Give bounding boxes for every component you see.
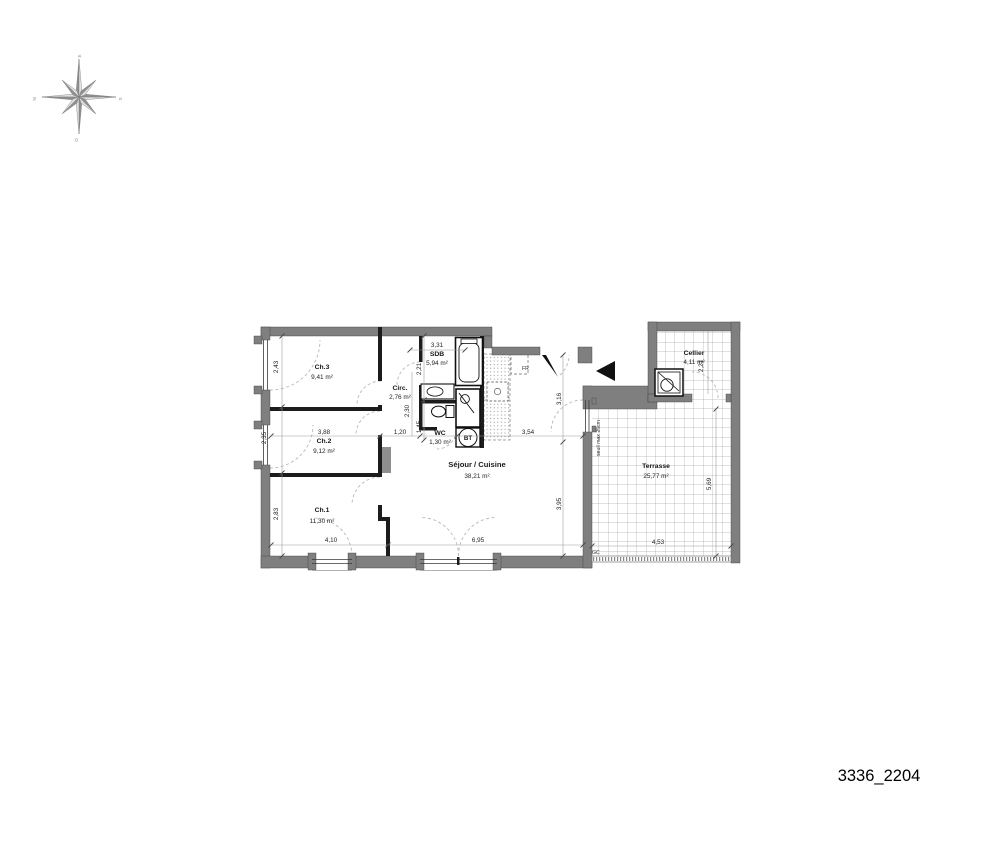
dim-circ-width: 1,20 [394,429,407,436]
dim-ch1-height: 2,83 [273,507,280,520]
dim-sdb-height: 2,21 [416,362,423,375]
duct-shaft [382,447,391,473]
dim-ch1-width: 4,10 [325,537,338,544]
dim-terrasse-width: 4,53 [652,539,665,546]
compass-letter-o: O [74,138,79,142]
dim-cellier-height: 2,21 [698,359,705,372]
cellar-fixtures [655,369,683,396]
fridge-label: FR [522,366,529,372]
terrace-railing [592,556,731,562]
compass-letter-n: N [32,97,37,100]
toilet-icon [446,406,454,418]
room-name-ch1: Ch.1 [315,507,330,514]
room-area-ch2: 9,12 m² [313,448,335,455]
dim-sejour-height: 3,95 [556,497,563,510]
room-area-circ: 2,76 m² [389,394,411,401]
plan-reference-number: 3336_2204 [838,767,921,785]
dim-ch2-height: 2,35 [261,431,268,444]
hob-icon [487,382,508,401]
entry-door [542,355,558,377]
compass-letter-e: E [77,54,82,57]
room-area-terrasse: 25,77 m² [643,473,668,480]
threshold-label: seuil max 25cm [596,420,602,456]
compass-letter-s: S [118,97,123,100]
dim-ch2-width: 3,88 [318,429,331,436]
dim-sejour-width: 6,95 [472,537,485,544]
room-name-ch3: Ch.3 [315,364,330,371]
room-name-wc: WC [434,430,445,437]
dim-wc-inner: 1,45 [416,420,423,433]
dim-ch3-height: 2,43 [273,360,280,373]
room-name-terrasse: Terrasse [642,463,670,470]
room-name-circ: Circ. [392,385,407,392]
room-area-sdb: 5,94 m² [426,360,448,367]
floor-plan-page: N E S O [0,0,1000,857]
dim-entry-height: 3,16 [556,392,563,405]
room-area-sejour: 38,21 m² [464,473,489,480]
compass-rose: N E S O [32,54,123,141]
room-name-sdb: SDB [430,351,444,358]
floor-plan-canvas: N E S O [0,0,1000,857]
dim-sejour-mid: 3,54 [522,429,535,436]
entrance-arrow-icon [596,361,615,381]
room-area-ch3: 9,41 m² [311,374,333,381]
dim-wc-height: 2,30 [404,404,411,417]
entry-door-leaf [542,355,558,377]
dim-terrasse-height: 5,69 [706,477,713,490]
room-area-ch1: 11,30 m² [310,518,335,525]
room-name-sejour: Séjour / Cuisine [448,460,505,469]
room-name-cellier: Cellier [684,350,705,357]
dim-sdb-width: 3,31 [431,342,444,349]
railing-label: GC [592,550,600,556]
room-name-ch2: Ch.2 [317,438,332,445]
shower-icon [456,389,480,427]
technical-box-label: BT [464,435,472,442]
room-area-wc: 1,30 m² [429,439,451,446]
